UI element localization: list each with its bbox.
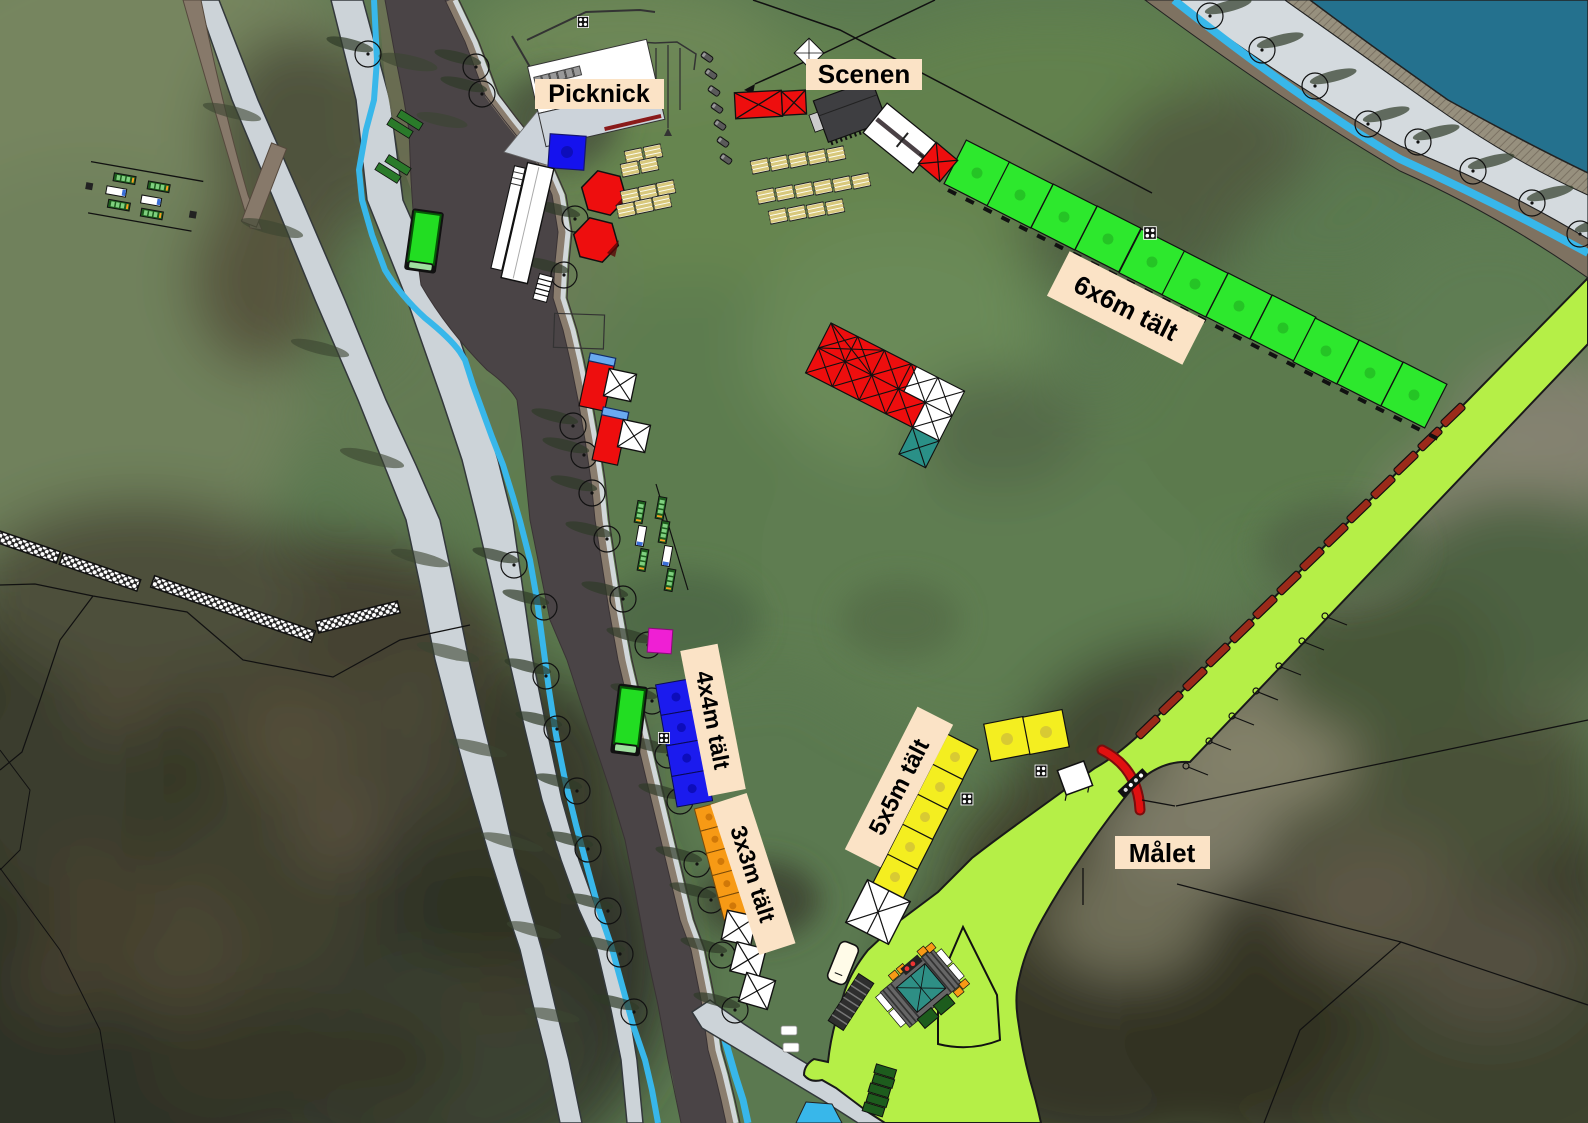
svg-text:Målet: Målet	[1129, 838, 1196, 868]
svg-text:Scenen: Scenen	[818, 59, 911, 89]
svg-text:Picknick: Picknick	[548, 80, 650, 108]
